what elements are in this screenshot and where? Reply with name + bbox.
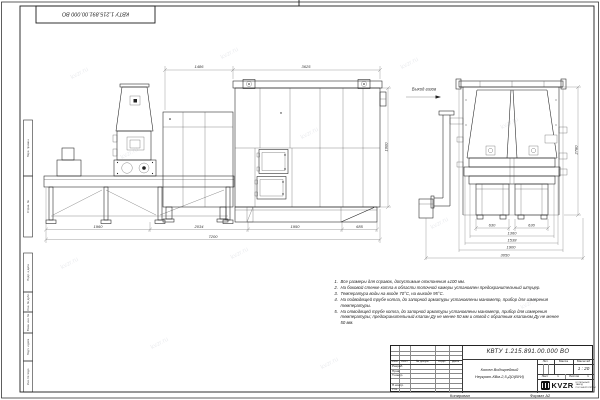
col-doc: № докум.: [410, 360, 435, 363]
dim-label: 1960: [94, 224, 104, 229]
col-sign: Подп.: [435, 360, 449, 363]
product-name-line2: Неукрат-КВм-2,5-ДО(ВУИ): [462, 375, 537, 379]
row-utv: Утв.: [392, 388, 398, 391]
feed-platform: [44, 148, 234, 224]
margin-label: Инв. № подл.: [26, 368, 30, 386]
rear-section: [163, 112, 233, 222]
dim-label: 1600: [384, 142, 389, 152]
margin-label: Подп. и дата: [26, 338, 30, 355]
dim-label: 1486: [195, 64, 205, 69]
row-tkontr: Т.контр.: [392, 374, 403, 377]
mass-label: Масса: [554, 360, 573, 363]
format-label: Формат А2: [530, 393, 550, 398]
stamp-number: КВТУ 1.215.891.00.000 ВО: [61, 11, 129, 17]
title-block: Изм. Лист № докум. Подп. Дата Разраб. Пр…: [390, 345, 593, 392]
drawing-sheet: kvzr.ru kvzr.ru kvzr.ru kvzr.ru kvzr.ru …: [0, 0, 600, 400]
boiler-end-view: Выход газов: [406, 79, 585, 260]
note-number: 5.: [330, 309, 341, 327]
product-name-line1: Котел Водогрейный: [462, 368, 537, 372]
dim-label: 1360: [508, 231, 518, 236]
copied-label: Копировал: [450, 393, 470, 398]
row-nkontr: Н.контр.: [392, 384, 404, 387]
dim-label: 1538: [508, 238, 518, 243]
margin-label: Справ. №: [26, 200, 30, 213]
note-text: На подводящей трубе котла, до запорной а…: [341, 297, 564, 309]
sheets-number: 1: [583, 375, 593, 378]
dim-label: 630: [489, 223, 496, 228]
dim-label: 3625: [302, 64, 312, 69]
row-razrab: Разраб.: [392, 365, 403, 368]
sheet-number: 1: [553, 375, 563, 378]
note-item-4: 4. На подводящей трубе котла, до запорно…: [330, 297, 563, 309]
lit-label: Лит.: [537, 360, 554, 363]
note-text: На отводящей трубе котла, до запорной ар…: [341, 309, 564, 327]
notes-list: 1. Все размеры для справок, допустимые о…: [330, 279, 563, 326]
dim-label: 685: [356, 224, 363, 229]
dim-label: 3050: [501, 253, 511, 258]
kvzr-logo-subtext: КОТЕЛЬНЫЙ ЗАВОД РОСЭНЕРГОПРОМ: [576, 382, 596, 390]
gas-outlet-label: Выход газов: [412, 87, 437, 92]
dim-label: 1900: [507, 245, 517, 250]
kvzr-logo-icon: [541, 381, 550, 390]
margin-label: Взам. инв. №: [26, 314, 30, 331]
scale-label: Масштаб: [573, 360, 594, 363]
dim-label: 2780: [574, 145, 579, 156]
margin-label: Подп. и дата: [26, 264, 30, 281]
scale-value: 1 : 20: [573, 367, 594, 372]
gas-outlet-arrow: [406, 95, 441, 98]
dim-label: 7200: [209, 234, 219, 239]
end-view-body: [419, 79, 567, 219]
col-date: Дата: [449, 360, 462, 363]
margin-boxes: Перв. примен. Справ. № Подп. и дата Инв.…: [24, 120, 33, 392]
kvzr-logo-text: KVZR: [552, 381, 574, 390]
dim-label: 2034: [194, 224, 205, 229]
sheet-label: Лист: [537, 375, 553, 378]
row-prov: Пров.: [392, 370, 400, 373]
boiler-side-view: 1486 3625 1960 2034 1950 685: [44, 64, 391, 243]
note-item-5: 5. На отводящей трубе котла, до запорной…: [330, 309, 563, 327]
manufacturer-logo: KVZR КОТЕЛЬНЫЙ ЗАВОД РОСЭНЕРГОПРОМ: [541, 381, 596, 390]
access-door-upper: [257, 150, 288, 174]
water-pipe: [419, 111, 463, 218]
kvzr-sub-line2: РОСЭНЕРГОПРОМ: [576, 387, 596, 390]
sheets-label: Листов: [565, 375, 583, 378]
margin-label: Инв. № дубл.: [26, 293, 30, 311]
margin-label: Перв. примен.: [26, 138, 30, 157]
dim-label: 1950: [291, 224, 301, 229]
doc-number: КВТУ 1.215.891.00.000 ВО: [462, 349, 594, 355]
furnace-body: [233, 80, 386, 223]
burner-unit: [113, 84, 156, 176]
col-list: Лист: [399, 360, 410, 363]
note-number: 4.: [330, 297, 341, 309]
dim-label: 630: [528, 223, 535, 228]
access-door-lower: [255, 177, 286, 200]
col-izm: Изм.: [391, 360, 399, 363]
